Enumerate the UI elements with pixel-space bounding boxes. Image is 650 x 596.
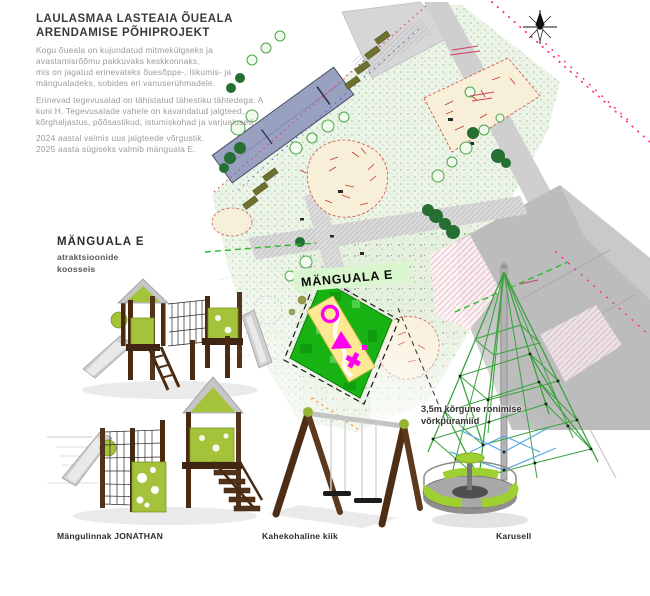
timeline-line: 2025 aasta sügiseks valmib mänguala E. (36, 144, 286, 155)
timeline-paragraph: 2024 aastal valmis uus jalgteede võrgust… (36, 133, 286, 155)
intro-line: avastamisrõõmu pakkuvaks keskkonnaks, (36, 56, 286, 67)
project-title-line2: ARENDAMISE PÕHIPROJEKT (36, 26, 276, 40)
caption-swing: Kahekohaline kiik (262, 531, 338, 541)
project-title: LAULASMAA LASTEAIA ÕUEALA ARENDAMISE PÕH… (36, 12, 276, 40)
subtitle-line: atraktsioonide (57, 252, 119, 264)
intro-paragraph: Kogu õueala on kujundatud mitmekülgseks … (36, 45, 286, 89)
caption-carousel: Karusell (496, 531, 532, 541)
project-title-line1: LAULASMAA LASTEAIA ÕUEALA (36, 12, 276, 26)
compass-north-icon (523, 10, 557, 44)
pyramid-note-line: 3,5m kõrgune ronimise (421, 403, 522, 415)
pyramid-note: 3,5m kõrgune ronimise võrkpüramiid (421, 403, 522, 427)
intro-line: Kogu õueala on kujundatud mitmekülgseks … (36, 45, 286, 56)
project-sheet: { "doc": { "title_line1": "LAULASMAA LAS… (0, 0, 650, 596)
zones-line: Erinevad tegevusalad on tähistatud tähes… (36, 95, 286, 106)
intro-line: mängualadeks, sobides eri vanuserühmadel… (36, 78, 286, 89)
site-plan-canvas: MÄNGUALA E (0, 0, 650, 596)
zones-line: kuni H. Tegevusalade vahele on kavandatu… (36, 106, 286, 117)
playarea-section-heading: MÄNGUALA E (57, 236, 145, 248)
caption-playhouse: Mängulinnak JONATHAN (57, 531, 163, 541)
zones-paragraph: Erinevad tegevusalad on tähistatud tähes… (36, 95, 286, 128)
timeline-line: 2024 aastal valmis uus jalgteede võrgust… (36, 133, 286, 144)
playarea-section-subtitle: atraktsioonide koosseis (57, 252, 119, 275)
pyramid-note-line: võrkpüramiid (421, 415, 522, 427)
intro-line: mis on jagatud erinevateks õuesõppe-, li… (36, 67, 286, 78)
subtitle-line: koosseis (57, 264, 119, 276)
zones-line: kõrghaljastus, põõsastikud, istumiskohad… (36, 117, 286, 128)
